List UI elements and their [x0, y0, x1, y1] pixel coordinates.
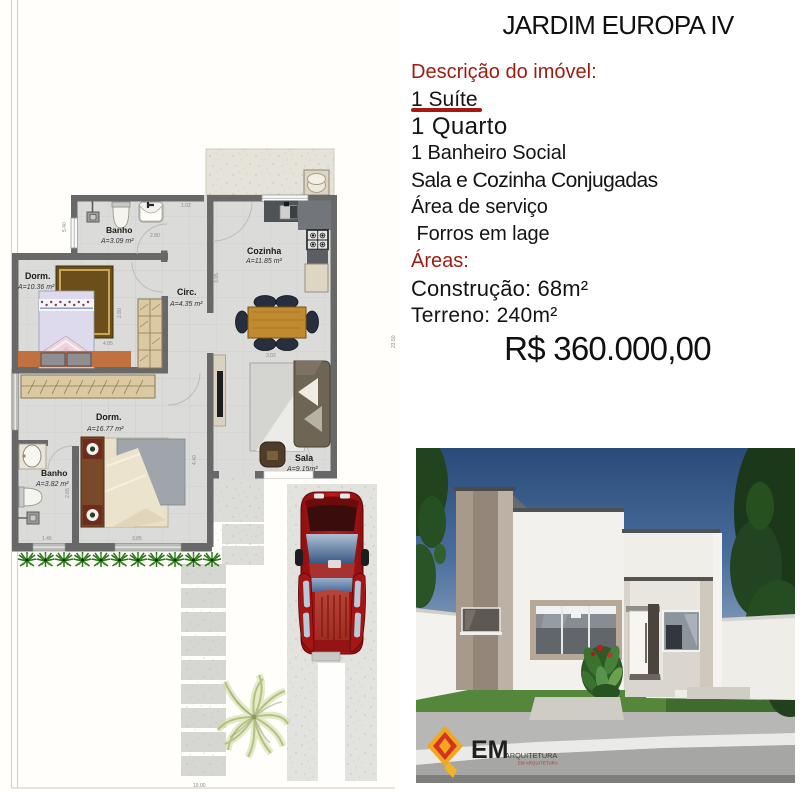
svg-text:3.95: 3.95: [214, 273, 220, 283]
svg-text:Sala: Sala: [295, 453, 313, 463]
svg-text:2.65: 2.65: [65, 488, 71, 498]
svg-text:3.02: 3.02: [266, 353, 276, 359]
svg-text:Banho: Banho: [106, 225, 132, 235]
svg-text:4.40: 4.40: [192, 455, 198, 465]
svg-text:4.05: 4.05: [103, 341, 113, 347]
svg-text:A=4.35 m²: A=4.35 m²: [169, 301, 203, 308]
svg-text:2.80: 2.80: [117, 308, 123, 318]
svg-text:A=16.77 m²: A=16.77 m²: [86, 426, 124, 433]
svg-text:EM: EM: [471, 736, 509, 764]
svg-text:5.40: 5.40: [62, 222, 68, 232]
svg-text:23.50: 23.50: [391, 335, 397, 348]
svg-text:ARQUITETURA: ARQUITETURA: [505, 751, 557, 760]
svg-text:1.45: 1.45: [42, 536, 52, 542]
svg-text:1.02: 1.02: [181, 203, 191, 209]
svg-text:Cozinha: Cozinha: [247, 246, 281, 256]
svg-text:EM ARQUITETURA: EM ARQUITETURA: [518, 761, 558, 766]
svg-text:Banho: Banho: [41, 468, 67, 478]
svg-text:A=3.09 m²: A=3.09 m²: [100, 238, 134, 245]
svg-text:19.00: 19.00: [193, 783, 206, 789]
svg-text:A=11.85 m²: A=11.85 m²: [245, 258, 283, 265]
svg-text:A=10.36 m²: A=10.36 m²: [17, 284, 55, 291]
svg-text:Dorm.: Dorm.: [96, 412, 121, 422]
svg-text:Dorm.: Dorm.: [25, 271, 50, 281]
svg-text:3.85: 3.85: [132, 536, 142, 542]
svg-text:A=3.82 m²: A=3.82 m²: [35, 481, 69, 488]
svg-text:A=9.15m²: A=9.15m²: [286, 466, 318, 473]
svg-text:2.80: 2.80: [150, 233, 160, 239]
svg-text:Circ.: Circ.: [177, 287, 197, 297]
